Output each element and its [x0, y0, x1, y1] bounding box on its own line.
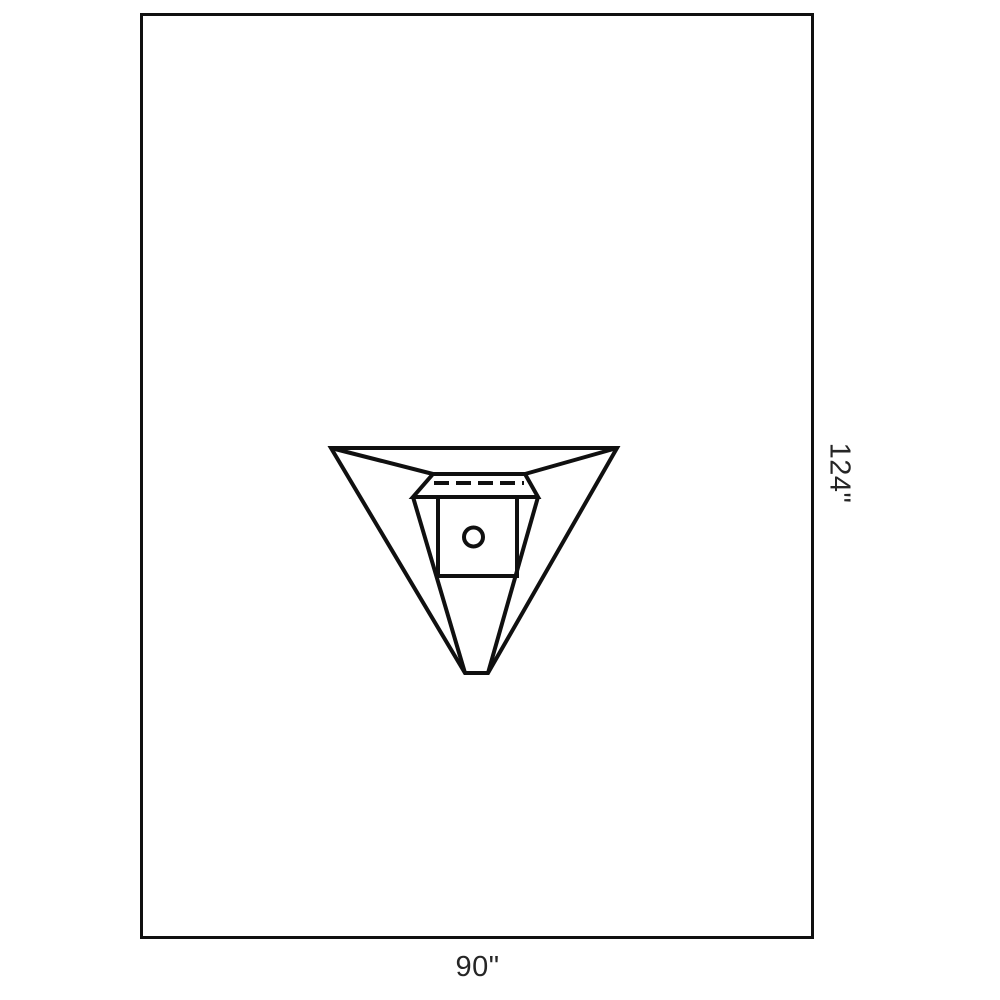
width-dimension-label: 90" [141, 953, 814, 982]
pouch-inner-right-taper [488, 497, 538, 673]
drape-product-diagram: 90" 124" [0, 0, 1000, 1000]
height-dimension-label: 124" [825, 443, 854, 504]
pouch-square-panel [438, 497, 517, 576]
pouch-outer-funnel [331, 448, 617, 673]
pouch-header-trapezoid [413, 474, 538, 497]
drain-port-circle-icon [464, 528, 483, 547]
